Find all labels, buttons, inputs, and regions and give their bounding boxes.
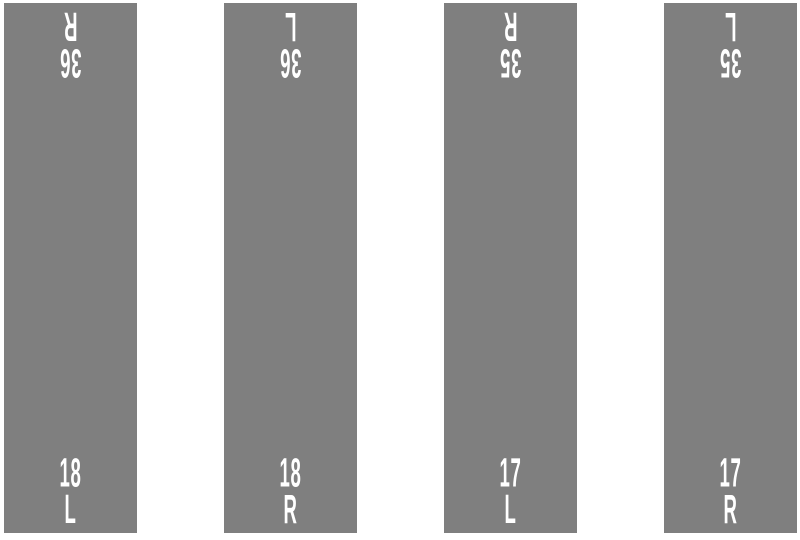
runway-letter: R: [249, 492, 331, 528]
runway-number: 18: [249, 456, 331, 492]
runway-number: 36: [29, 44, 111, 80]
runway-number: 17: [689, 456, 771, 492]
runway-letter: L: [689, 8, 771, 44]
runway-strip-1: 36 R 18 L: [4, 3, 137, 533]
runway-letter: R: [689, 492, 771, 528]
runway-letter: L: [29, 492, 111, 528]
runway-designation-top: 35 R: [469, 8, 551, 81]
runway-diagram: 36 R 18 L 36 L 18 R 35 R 17 L 35 L: [0, 0, 800, 540]
runway-letter: L: [469, 492, 551, 528]
runway-number: 18: [29, 456, 111, 492]
runway-designation-bottom: 17 R: [689, 456, 771, 529]
runway-letter: R: [29, 8, 111, 44]
runway-designation-top: 35 L: [689, 8, 771, 81]
runway-designation-bottom: 17 L: [469, 456, 551, 529]
runway-number: 36: [249, 44, 331, 80]
runway-number: 35: [469, 44, 551, 80]
runway-designation-top: 36 L: [249, 8, 331, 81]
runway-strip-2: 36 L 18 R: [224, 3, 357, 533]
runway-designation-bottom: 18 L: [29, 456, 111, 529]
runway-letter: R: [469, 8, 551, 44]
runway-designation-bottom: 18 R: [249, 456, 331, 529]
runway-strip-3: 35 R 17 L: [444, 3, 577, 533]
runway-strip-4: 35 L 17 R: [664, 3, 797, 533]
runway-number: 17: [469, 456, 551, 492]
runway-designation-top: 36 R: [29, 8, 111, 81]
runway-number: 35: [689, 44, 771, 80]
runway-letter: L: [249, 8, 331, 44]
